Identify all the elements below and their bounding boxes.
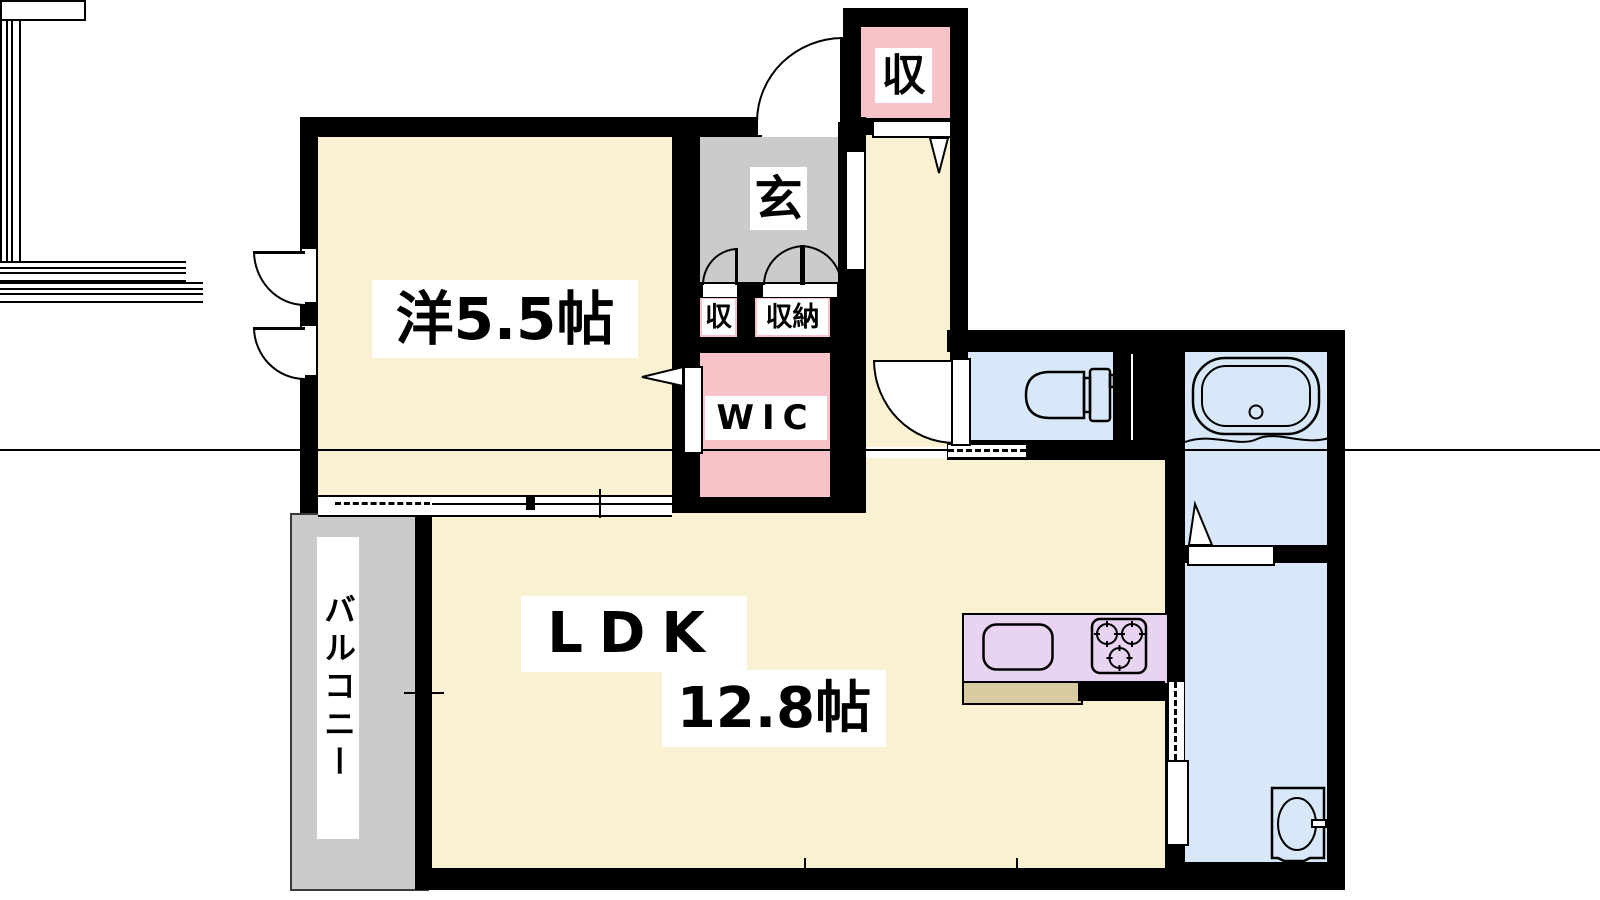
- wall-wic-bottom: [672, 497, 846, 513]
- wall-seam: [1131, 354, 1133, 440]
- bathtub-icon: [1191, 356, 1323, 448]
- closet-opening: [763, 284, 837, 297]
- wall-washroom-bottom: [1185, 862, 1345, 890]
- washroom-sliding-door: [1166, 760, 1189, 846]
- label-balcony: バルコニー: [317, 537, 359, 839]
- ldk-window-tick-2: [1016, 858, 1018, 884]
- floor-plan: 洋5.5帖 玄 収 収 収納 WIC LDK 12.8帖 バルコニー: [0, 0, 1600, 900]
- hallway-ldk-sliding-door: [0, 0, 86, 21]
- wall-wic-right: [830, 290, 866, 513]
- balcony-window-tick: [404, 692, 444, 694]
- wall-wing-top: [947, 330, 1345, 352]
- western-window-2-swing-icon: [253, 327, 305, 380]
- kitchen-counter-base-dark: [1078, 681, 1165, 701]
- partition-tick: [599, 489, 601, 518]
- label-storage-closet: 収納: [757, 299, 828, 335]
- ldk-window-tick-1: [804, 858, 806, 884]
- wall-ldk-left: [415, 513, 432, 868]
- label-genkan: 玄: [750, 167, 807, 230]
- toilet-icon: [1022, 366, 1114, 426]
- bath-door: [1187, 545, 1275, 566]
- hallway-ldk-door-pocket: [948, 444, 1026, 458]
- wall-closet-bottom: [672, 337, 846, 353]
- wall-western-left: [300, 117, 318, 513]
- entrance-door-icon: [756, 37, 843, 122]
- stove-icon: [1090, 617, 1150, 677]
- kitchen-counter-base: [962, 681, 1083, 705]
- western-window-1-swing-icon: [253, 251, 305, 306]
- label-storage-upper: 収: [875, 48, 932, 103]
- wall-closet-divider: [737, 295, 755, 337]
- partition-western-ldk: [318, 495, 672, 517]
- wall-right-outer: [1327, 330, 1345, 890]
- label-ldk: LDK: [521, 596, 747, 672]
- washroom-door-pocket: [1168, 682, 1185, 760]
- storage-fold-mark-icon: [928, 136, 950, 176]
- bath-door-swing-icon: [1188, 502, 1214, 548]
- genkan-hall-door: [845, 150, 866, 271]
- wall-western-corner: [300, 495, 318, 513]
- ldk-window-2: [0, 282, 203, 303]
- wic-door: [683, 366, 703, 454]
- wic-door-swing-icon: [640, 364, 686, 388]
- label-western-room: 洋5.5帖: [372, 280, 638, 358]
- sink-icon: [982, 623, 1054, 671]
- label-wic: WIC: [705, 396, 827, 440]
- ldk-window-1: [0, 261, 186, 282]
- toilet-door: [951, 358, 971, 446]
- label-storage-small: 収: [702, 299, 735, 335]
- balcony: [290, 513, 429, 891]
- closet-small-opening: [703, 284, 737, 297]
- washbasin-icon: [1270, 786, 1326, 862]
- balcony-window: [0, 21, 21, 261]
- label-ldk-area: 12.8帖: [662, 670, 886, 747]
